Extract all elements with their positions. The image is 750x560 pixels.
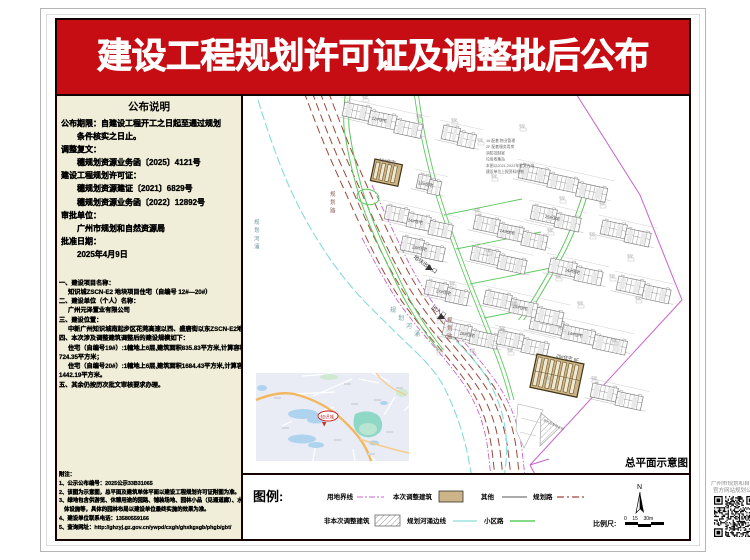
svg-text:规: 规 [254, 218, 260, 226]
svg-text:宅配: 宅配 [477, 137, 483, 142]
svg-text:用地界线: 用地界线 [326, 492, 354, 501]
svg-text:规: 规 [330, 190, 336, 198]
svg-text:宅配: 宅配 [635, 295, 641, 300]
svg-text:宅配: 宅配 [547, 227, 553, 232]
svg-text:知识城: 知识城 [321, 414, 335, 421]
svg-text:规划路: 规划路 [533, 492, 553, 501]
svg-text:河: 河 [406, 322, 412, 330]
svg-text:规划河涌边线: 规划河涌边线 [407, 516, 447, 525]
svg-text:比例尺:: 比例尺: [593, 519, 616, 528]
svg-text:宅配: 宅配 [589, 231, 595, 236]
svg-text:规: 规 [447, 316, 453, 324]
svg-text:宅配: 宅配 [577, 300, 583, 305]
svg-text:划: 划 [447, 324, 453, 332]
svg-text:宅配: 宅配 [555, 273, 561, 278]
svg-text:宅配: 宅配 [436, 347, 442, 352]
svg-text:划: 划 [398, 314, 404, 322]
svg-text:宅配: 宅配 [609, 273, 615, 278]
svg-text:宅配: 宅配 [507, 347, 513, 352]
svg-text:2F 配套服务用房: 2F 配套服务用房 [486, 144, 514, 149]
svg-text:路: 路 [447, 332, 453, 340]
svg-text:1# 配套 物业管理: 1# 配套 物业管理 [486, 138, 515, 143]
svg-text:图例:: 图例: [253, 489, 283, 504]
svg-text:宅配: 宅配 [544, 375, 550, 380]
svg-text:总平面示意图: 总平面示意图 [625, 456, 688, 469]
svg-text:宅配: 宅配 [416, 113, 422, 118]
svg-text:其他: 其他 [481, 492, 495, 501]
svg-text:宅配: 宅配 [485, 247, 491, 252]
svg-text:非本次调整建筑: 非本次调整建筑 [324, 516, 370, 525]
svg-text:宅配: 宅配 [474, 207, 480, 212]
svg-text:N: N [637, 484, 642, 491]
svg-text:小区路: 小区路 [483, 516, 504, 525]
svg-text:规: 规 [390, 306, 396, 314]
svg-text:本次调整建筑: 本次调整建筑 [393, 492, 433, 501]
svg-text:划: 划 [330, 198, 336, 206]
svg-text:宅配: 宅配 [627, 253, 633, 258]
svg-text:河: 河 [254, 234, 260, 242]
svg-text:划: 划 [254, 226, 260, 234]
svg-text:涌: 涌 [254, 243, 260, 251]
svg-text:宅配: 宅配 [511, 300, 517, 305]
svg-text:宅配: 宅配 [559, 325, 565, 330]
svg-text:宅配: 宅配 [599, 200, 605, 205]
svg-text:宅配: 宅配 [591, 375, 597, 380]
svg-text:宅配: 宅配 [449, 280, 455, 285]
svg-text:宅配: 宅配 [362, 96, 368, 99]
svg-text:本图以2021,2022年批文为准: 本图以2021,2022年批文为准 [486, 163, 535, 168]
svg-text:宅配: 宅配 [559, 195, 565, 200]
svg-text:垃圾收集站: 垃圾收集站 [486, 157, 505, 162]
svg-text:宅配: 宅配 [499, 325, 505, 330]
svg-text:路: 路 [330, 206, 336, 214]
svg-text:宅配: 宅配 [491, 173, 497, 178]
svg-text:宅配: 宅配 [469, 347, 475, 352]
svg-text:宅配: 宅配 [611, 337, 617, 342]
svg-text:涌: 涌 [414, 330, 420, 338]
svg-text:宅配: 宅配 [451, 117, 457, 122]
svg-text:消防控制室: 消防控制室 [486, 150, 505, 155]
svg-text:0 15 30m: 0 15 30m [624, 516, 653, 522]
svg-text:宅配: 宅配 [519, 123, 525, 128]
